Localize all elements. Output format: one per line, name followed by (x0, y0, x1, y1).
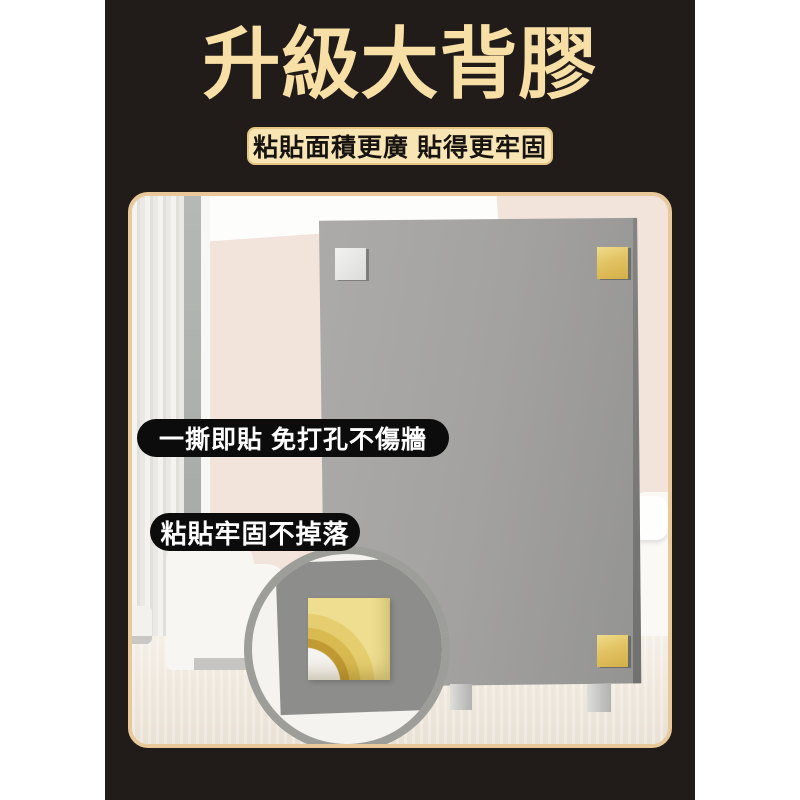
ottoman (128, 606, 152, 644)
feature-badge-tear-and-stick: 一撕即貼 免打孔不傷牆 (137, 419, 449, 457)
product-photo (128, 192, 672, 748)
magnifier-circle (244, 546, 450, 748)
subtitle-text: 粘貼面積更廣 貼得更牢固 (253, 128, 547, 164)
board-shadow-edge (633, 216, 641, 688)
magnified-gold-pad-peeling (308, 598, 390, 680)
adhesive-pad-gold-bottom (597, 635, 628, 667)
page-title: 升級大背膠 (105, 20, 695, 110)
board-leg-left (450, 684, 472, 710)
white-armchair (166, 538, 254, 670)
feature-badge-firm-hold: 粘貼牢固不掉落 (150, 513, 360, 551)
adhesive-pad-gold-top (597, 247, 628, 279)
board-leg-right (587, 684, 611, 712)
promo-banner: 升級大背膠 粘貼面積更廣 貼得更牢固 一撕即貼 免打孔不傷牆 粘貼牢固不掉落 (105, 0, 695, 800)
subtitle-badge: 粘貼面積更廣 貼得更牢固 (247, 127, 553, 165)
adhesive-pad-silver (335, 248, 366, 280)
